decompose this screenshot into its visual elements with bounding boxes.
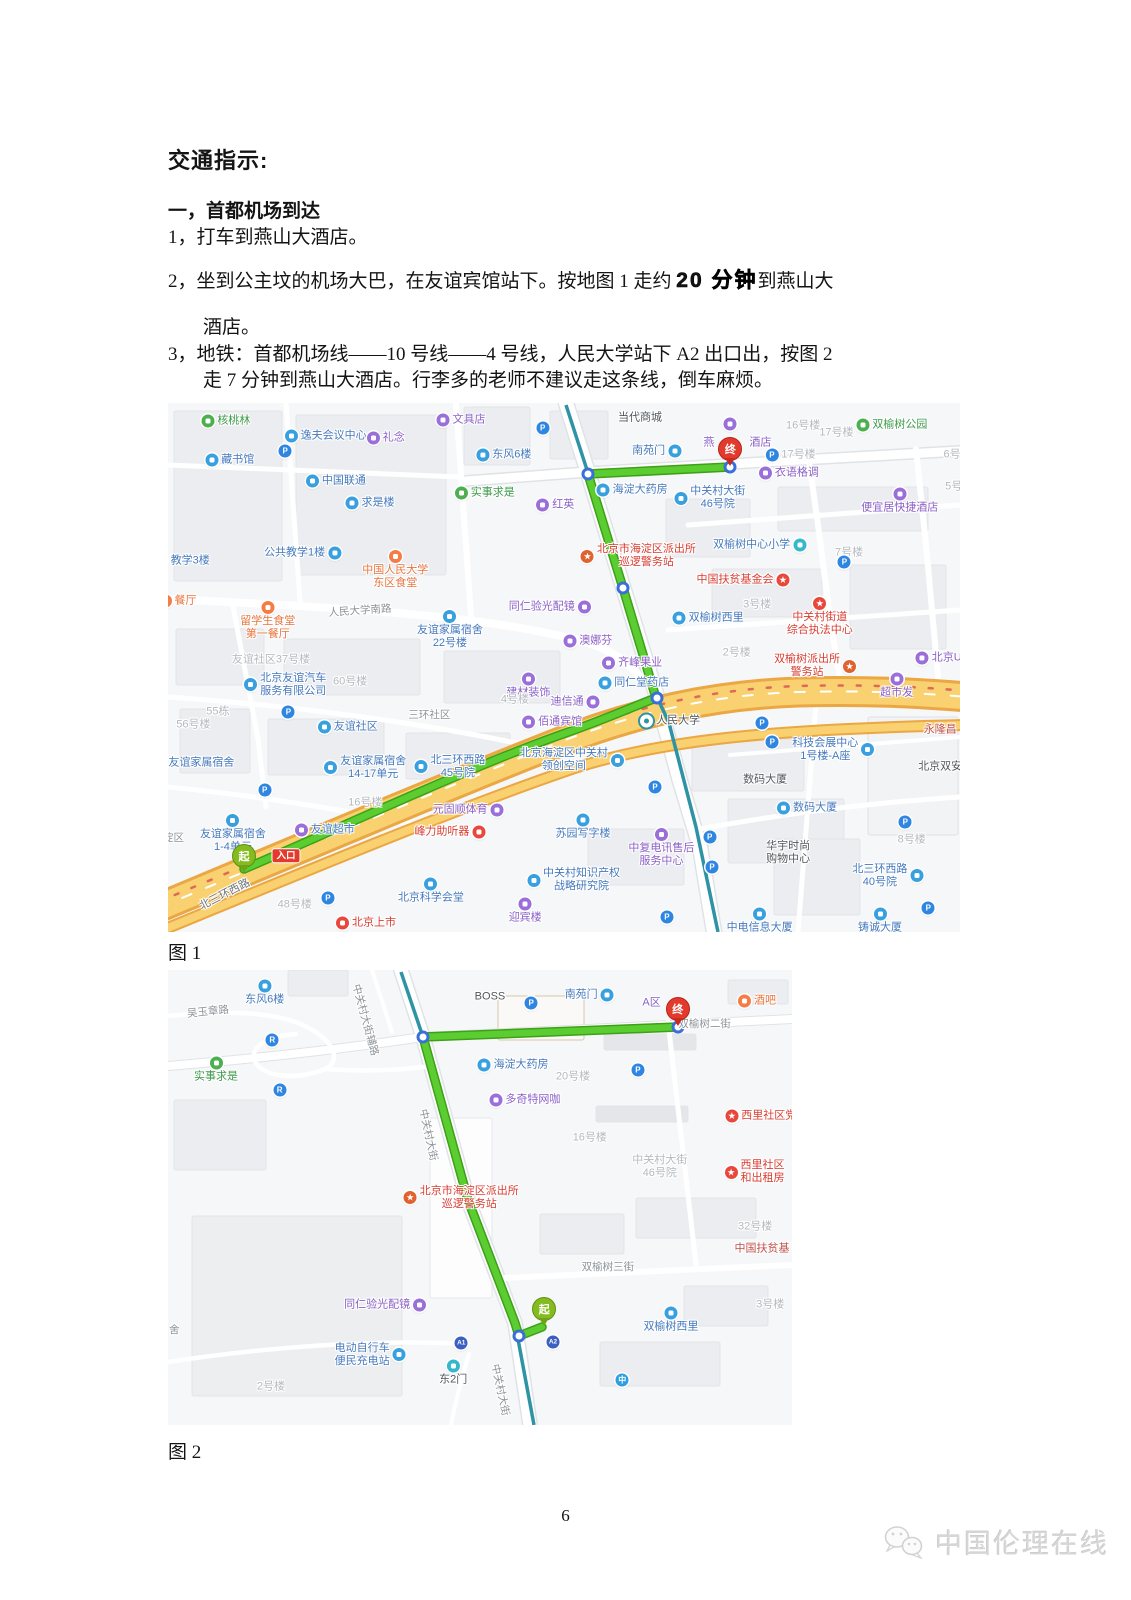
poi-label: 北京友谊汽车 服务有限公司 — [260, 672, 326, 698]
map-poi: 17号楼 — [819, 427, 853, 440]
poi-icon — [522, 715, 535, 728]
map-poi: P — [321, 892, 334, 905]
poi-icon — [673, 611, 686, 624]
map-poi: P — [536, 421, 549, 434]
poi-icon — [522, 673, 535, 686]
poi-label: 东风6楼 — [245, 993, 284, 1006]
poi-label: 双榆树公园 — [872, 419, 927, 432]
map-poi: 3号楼 — [743, 599, 771, 612]
poi-label: 永隆昌 — [924, 723, 957, 736]
poi-icon — [674, 492, 687, 505]
poi-label: 16号楼 — [786, 419, 820, 432]
poi-icon: R — [266, 1034, 279, 1047]
item2-number: 2， — [168, 271, 197, 292]
map-poi: 实事求是 — [194, 1057, 238, 1084]
map-poi: P — [766, 736, 779, 749]
map-poi: 北京上市 — [336, 917, 396, 930]
map-poi: 3号楼 — [756, 1298, 784, 1311]
poi-label: 中关村大街 46号院 — [690, 485, 745, 511]
map-poi: 北京科学会堂 — [398, 877, 464, 904]
map-poi: 20号楼 — [556, 1070, 590, 1083]
poi-icon — [336, 917, 349, 930]
map-poi: 5号 — [945, 480, 960, 493]
poi-label: 齐峰果业 — [618, 656, 662, 669]
map-poi: 中国扶贫基金会★ — [696, 574, 789, 587]
poi-label: 逸夫会议中心 — [301, 429, 367, 442]
map-poi: ★北京市海淀区派出所 巡逻警务站 — [404, 1185, 519, 1211]
poi-icon — [724, 417, 737, 430]
map-poi: A1 — [455, 1337, 468, 1350]
poi-label: 中国扶贫基 — [735, 1242, 790, 1255]
poi-icon: ★ — [725, 1166, 738, 1179]
map-poi: A2 — [547, 1336, 560, 1349]
map-poi: 中关村知识产权 战略研究院 — [527, 867, 620, 893]
poi-icon — [258, 979, 271, 992]
poi-label: 实事求是 — [194, 1071, 238, 1084]
poi-icon — [285, 429, 298, 442]
poi-label: 北京科学会堂 — [398, 891, 464, 904]
map-poi: 4号楼 — [501, 693, 529, 706]
poi-icon: P — [765, 448, 778, 461]
map-poi: P — [899, 815, 912, 828]
poi-label: 澳娜芬 — [579, 635, 612, 648]
map-poi: 永隆昌 — [924, 723, 957, 736]
map-poi: 礼念 — [367, 431, 405, 444]
poi-icon — [577, 814, 590, 827]
poi-label: 48号楼 — [278, 899, 312, 912]
poi-icon — [447, 1360, 460, 1373]
poi-icon — [414, 760, 427, 773]
map-poi: ★西里社区党 — [725, 1109, 792, 1122]
poi-label: 16号楼 — [573, 1131, 607, 1144]
poi-icon — [738, 994, 751, 1007]
poi-label: 衣语格调 — [775, 466, 819, 479]
map-poi: 中国联通 — [306, 474, 366, 487]
poi-label: 中关村大街 46号院 — [632, 1154, 687, 1180]
poi-icon — [476, 448, 489, 461]
poi-label: 双榆树中心小学 — [713, 538, 790, 551]
poi-label: 舍 — [169, 1324, 180, 1336]
poi-label: 文具店 — [453, 413, 486, 426]
map-poi: 同仁验光配镜 — [509, 601, 591, 614]
figure-2-caption: 图 2 — [168, 1437, 201, 1464]
poi-icon — [587, 695, 600, 708]
item2-text-1: 坐到公主坟的机场大巴，在友谊宾馆站下。按地图 1 走约 — [197, 271, 677, 292]
map-poi: 三环社区 — [408, 709, 450, 721]
poi-icon: ★ — [813, 597, 826, 610]
poi-icon — [226, 814, 239, 827]
map-poi: P — [631, 1064, 644, 1077]
poi-label: 中复电讯售后 服务中心 — [628, 842, 694, 868]
poi-icon: R — [273, 1084, 286, 1097]
poi-label: 当代商城 — [618, 411, 662, 424]
poi-label: 北京双安 — [918, 760, 960, 773]
poi-label: 友谊家属宿舍 1-4单元 — [200, 828, 266, 854]
list-item-1: 1，打车到燕山大酒店。 — [168, 226, 368, 251]
poi-label: 华宇时尚 购物中心 — [766, 840, 810, 866]
map-poi: 60号楼 — [333, 675, 367, 688]
poi-label: 17号楼 — [819, 427, 853, 440]
poi-icon — [655, 828, 668, 841]
poi-label: 铸诚大厦 — [858, 921, 902, 932]
map-poi: 中国扶贫基 — [735, 1242, 790, 1255]
map-poi: P — [660, 911, 673, 924]
map-poi: 双榆树中心小学 — [713, 538, 806, 551]
poi-icon — [393, 1348, 406, 1361]
poi-icon: ★ — [776, 574, 789, 587]
poi-icon — [668, 445, 681, 458]
poi-icon — [861, 744, 874, 757]
poi-label: 中国联通 — [322, 474, 366, 487]
map-poi: 8号楼 — [898, 833, 926, 846]
map-poi: 淀区 — [168, 832, 184, 844]
poi-icon — [295, 823, 308, 836]
poi-icon — [455, 486, 468, 499]
item3-number: 3， — [168, 344, 197, 365]
map-poi: 同仁堂药店 — [598, 676, 669, 689]
poi-label: 双榆树西里 — [643, 1321, 698, 1334]
poi-label: 东2门 — [439, 1374, 467, 1387]
map-poi: ★中关村街道 综合执法中心 — [787, 597, 853, 637]
map-poi: 迎宾楼 — [509, 897, 542, 924]
map-poi: P — [922, 902, 935, 915]
map-poi: 北京海淀区中关村 领创空间 — [520, 747, 624, 773]
list-item-3-line-1: 3，地铁：首都机场线——10 号线——4 号线，人民大学站下 A2 出口出，按图… — [168, 343, 833, 368]
poi-label: 北京市海淀区派出所 巡逻警务站 — [420, 1185, 519, 1211]
poi-label: BOSS — [475, 990, 506, 1003]
map-poi: 56号楼 — [176, 719, 210, 732]
poi-icon — [611, 754, 624, 767]
map-poi: P — [649, 781, 662, 794]
map-poi: ★北京市海淀区派出所 巡逻警务站 — [581, 543, 696, 569]
item1-number: 1， — [168, 227, 197, 248]
map-poi: 北京双安 — [918, 760, 960, 773]
map-poi: 32号楼 — [738, 1221, 772, 1234]
poi-icon — [777, 802, 790, 815]
poi-icon: P — [766, 736, 779, 749]
poi-icon: P — [649, 781, 662, 794]
poi-label: 求是楼 — [361, 496, 394, 509]
poi-icon: P — [706, 860, 719, 873]
poi-icon — [345, 496, 358, 509]
entrance-tag: 入口 — [271, 848, 300, 864]
poi-label: 3号楼 — [756, 1298, 784, 1311]
poi-label: 20号楼 — [556, 1070, 590, 1083]
wechat-icon — [881, 1523, 927, 1561]
map-poi: P — [282, 705, 295, 718]
poi-label: 北京上市 — [352, 917, 396, 930]
poi-label: 5号 — [945, 480, 960, 493]
poi-label: 电动自行车 便民充电站 — [335, 1342, 390, 1368]
map-poi: 双榆树西里 — [643, 1307, 698, 1334]
poi-icon: P — [756, 717, 769, 730]
map-poi: 超市发 — [880, 673, 913, 700]
map-poi: 双榆树派出所 警务站★ — [774, 653, 856, 679]
map-poi: 48号楼 — [278, 899, 312, 912]
map-poi: 多奇特网咖 — [489, 1094, 560, 1107]
poi-label: 中国扶贫基金会 — [696, 574, 773, 587]
poi-label: 北京海淀区中关村 领创空间 — [520, 747, 608, 773]
poi-icon — [910, 869, 923, 882]
poi-label: 公共教学1楼 — [264, 547, 325, 560]
poi-icon: P — [279, 445, 292, 458]
poi-label: 西里社区党 — [741, 1109, 792, 1122]
map-poi: P — [258, 784, 271, 797]
poi-label: 56号楼 — [176, 719, 210, 732]
poi-icon: A1 — [455, 1337, 468, 1350]
poi-icon — [598, 676, 611, 689]
poi-label: 人民大学 — [656, 715, 700, 728]
map-poi: 求是楼 — [345, 496, 394, 509]
poi-icon: P — [525, 997, 538, 1010]
watermark-text: 中国伦理在线 — [935, 1522, 1109, 1561]
poi-icon — [578, 601, 591, 614]
poi-icon — [168, 594, 172, 607]
map-poi: 便宜居快捷酒店 — [861, 487, 938, 514]
map-poi: 16号楼 — [786, 419, 820, 432]
poi-icon: P — [282, 705, 295, 718]
poi-label: A区 — [642, 997, 660, 1010]
map-poi: 齐峰果业 — [602, 656, 662, 669]
poi-label: 海淀大药房 — [494, 1059, 549, 1072]
poi-icon: P — [899, 815, 912, 828]
poi-icon: ★ — [725, 1109, 738, 1122]
section-heading: 一，首都机场到达 — [168, 196, 320, 223]
poi-icon: P — [660, 911, 673, 924]
poi-label: 红英 — [552, 499, 574, 512]
poi-label: 6号 — [944, 448, 960, 461]
map-poi: 数码大厦 — [777, 802, 837, 815]
poi-label: 8号楼 — [898, 833, 926, 846]
poi-label: 友谊家属宿舍 — [168, 757, 234, 770]
poi-icon — [519, 897, 532, 910]
map-poi: 2号楼 — [723, 647, 751, 660]
poi-label: 峰力助听器 — [414, 826, 469, 839]
map-poi: 佰通宾馆 — [522, 715, 582, 728]
item3-text-1: 地铁：首都机场线——10 号线——4 号线，人民大学站下 A2 出口出，按图 2 — [197, 344, 833, 365]
poi-label: 双榆树三街 — [582, 1261, 635, 1273]
poi-icon — [367, 431, 380, 444]
map-poi: 海淀大药房 — [597, 483, 668, 496]
poi-icon: P — [703, 830, 716, 843]
poi-label: 同仁验光配镜 — [509, 601, 575, 614]
poi-icon — [318, 720, 331, 733]
poi-label: 佰通宾馆 — [538, 716, 582, 729]
poi-label: 酒吧 — [754, 994, 776, 1007]
map-poi: R — [273, 1084, 286, 1097]
map-poi: 东2门 — [439, 1360, 467, 1387]
poi-label: 中关村知识产权 战略研究院 — [543, 867, 620, 893]
poi-label: 双榆树西里 — [689, 611, 744, 624]
poi-label: 海淀大药房 — [613, 483, 668, 496]
map-poi: 6号 — [944, 448, 960, 461]
poi-label: 友谊社区37号楼 — [232, 654, 310, 667]
poi-icon — [893, 487, 906, 500]
poi-icon — [759, 466, 772, 479]
poi-icon — [478, 1059, 491, 1072]
map-poi: 教学3楼 — [168, 555, 210, 568]
poi-icon — [916, 651, 929, 664]
poi-icon — [640, 715, 653, 728]
map-poi: 北京UM — [916, 651, 960, 664]
map-poi: 衣语格调 — [759, 466, 819, 479]
map-poi: BOSS — [475, 990, 506, 1003]
map-poi: 友谊家属宿舍 14-17单元 — [324, 755, 406, 781]
map-poi: 逸夫会议中心 — [285, 429, 367, 442]
map-poi: 舍 — [169, 1324, 180, 1336]
map-poi: 16号楼 — [573, 1131, 607, 1144]
map-poi: 苏园写字楼 — [556, 814, 611, 841]
poi-icon — [261, 602, 274, 615]
figure-1-route-map: 核桃林逸夫会议中心礼念文具店东风6楼藏书馆PP中国联通求是楼实事求是红英公共教学… — [168, 403, 960, 932]
map-poi: 双榆树二街 — [678, 1018, 731, 1030]
poi-label: 友谊家属宿舍 14-17单元 — [340, 755, 406, 781]
map-poi: P — [706, 860, 719, 873]
map-poi: 海淀大药房 — [478, 1059, 549, 1072]
map-poi: 迪信通 — [551, 695, 600, 708]
poi-icon — [437, 413, 450, 426]
poi-label: 数码大厦 — [793, 802, 837, 815]
figure-2-route-map: 东风6楼吴玉章路BOSS南苑门P实事求是RR中关村大街辅路海淀大药房20号楼多奇… — [168, 970, 792, 1425]
poi-label: 礼念 — [383, 431, 405, 444]
poi-icon — [489, 1094, 502, 1107]
map-poi: 中 — [616, 1373, 629, 1386]
poi-icon: P — [321, 892, 334, 905]
map-poi: 友谊社区37号楼 — [232, 654, 310, 667]
map-poi: 红英 — [536, 499, 574, 512]
poi-icon — [413, 1298, 426, 1311]
poi-icon — [602, 656, 615, 669]
poi-icon — [793, 538, 806, 551]
poi-label: 南苑门 — [632, 445, 665, 458]
map-poi: 电动自行车 便民充电站 — [335, 1342, 406, 1368]
map-poi: ★西里社区 和出租房 — [725, 1160, 785, 1186]
poi-label: 东风6楼 — [492, 448, 531, 461]
page-title: 交通指示: — [168, 143, 268, 175]
poi-icon — [527, 874, 540, 887]
map-poi: 人民大学 — [640, 715, 700, 728]
map-poi: 核桃林 — [201, 414, 250, 427]
poi-icon — [205, 454, 218, 467]
map-poi: P — [756, 717, 769, 730]
map-poi: 北三环西路 40号院 — [852, 863, 923, 889]
map-poi: 中国人民大学 东区食堂 — [362, 550, 428, 590]
map-poi: 峰力助听器 — [414, 826, 485, 839]
poi-label: 核桃林 — [217, 415, 250, 428]
map-poi: 中关村大街 46号院 — [674, 485, 745, 511]
map-poi: 文具店 — [437, 413, 486, 426]
map-poi: 双榆树公园 — [856, 419, 927, 432]
poi-label: 北京UM — [932, 651, 960, 664]
poi-label: 双榆树二街 — [678, 1018, 731, 1030]
figure-1-caption: 图 1 — [168, 938, 201, 965]
map-poi: 友谊家属宿舍 1-4单元 — [200, 814, 266, 854]
poi-label: 2号楼 — [257, 1380, 285, 1393]
map-poi: 实事求是 — [455, 486, 515, 499]
list-item-2-line-2: 酒店。 — [203, 316, 260, 341]
poi-icon — [324, 762, 337, 775]
poi-label: 北三环西路 45号院 — [430, 754, 485, 780]
item1-text: 打车到燕山大酒店。 — [197, 227, 368, 248]
poi-icon — [389, 550, 402, 563]
map-poi: 数码大厦 — [743, 774, 787, 787]
poi-label: 双榆树派出所 警务站 — [774, 653, 840, 679]
map-poi: 友谊家属宿舍 — [168, 757, 234, 770]
map-poi: P17号楼 — [765, 448, 815, 461]
poi-icon: A2 — [547, 1336, 560, 1349]
poi-icon — [201, 414, 214, 427]
poi-label: 实事求是 — [471, 486, 515, 499]
poi-label: 西里社区 和出租房 — [741, 1160, 785, 1186]
poi-icon: P — [922, 902, 935, 915]
poi-label: 南苑门 — [565, 989, 598, 1002]
poi-icon — [306, 474, 319, 487]
map-poi: 友谊超市 — [295, 823, 355, 836]
poi-icon — [563, 635, 576, 648]
map-poi: 澳娜芬 — [563, 635, 612, 648]
list-item-3-line-2: 走 7 分钟到燕山大酒店。行李多的老师不建议走这条线，倒车麻烦。 — [203, 369, 773, 394]
duration-bold-text: 20 分钟 — [676, 269, 757, 292]
map-poi: 东风6楼 — [245, 979, 284, 1006]
map-poi: 16号楼 — [348, 796, 382, 809]
poi-label: 元固顺体育 — [433, 803, 488, 816]
map-poi: 双榆树三街 — [582, 1261, 635, 1273]
poi-icon — [890, 673, 903, 686]
poi-label: 三环社区 — [408, 709, 450, 721]
poi-label: 迎宾楼 — [509, 911, 542, 924]
map-poi: R — [266, 1034, 279, 1047]
poi-label: 便宜居快捷酒店 — [861, 501, 938, 514]
poi-label: 留学生食堂 第一餐厅 — [240, 616, 295, 642]
poi-label: 3号楼 — [743, 599, 771, 612]
map-poi: P — [525, 997, 538, 1010]
poi-icon — [597, 483, 610, 496]
map-poi: 中关村大街 46号院 — [632, 1154, 687, 1180]
poi-icon: ★ — [843, 660, 856, 673]
map-poi: 餐厅 — [168, 594, 197, 607]
poi-label: 北京市海淀区派出所 巡逻警务站 — [597, 543, 696, 569]
poi-label: 迪信通 — [551, 695, 584, 708]
poi-icon — [424, 877, 437, 890]
map-poi: 元固顺体育 — [433, 803, 504, 816]
map-poi: P — [279, 445, 292, 458]
poi-icon — [536, 499, 549, 512]
map-poi: 南苑门 — [565, 989, 614, 1002]
poi-label: 4号楼 — [501, 693, 529, 706]
poi-label: 中关村街道 综合执法中心 — [787, 611, 853, 637]
poi-label: 淀区 — [168, 832, 184, 844]
poi-icon — [874, 907, 887, 920]
poi-label: 同仁堂药店 — [614, 676, 669, 689]
watermark: 中国伦理在线 — [881, 1522, 1109, 1561]
poi-label: 2号楼 — [723, 647, 751, 660]
poi-label: 17号楼 — [781, 448, 815, 461]
poi-icon — [472, 826, 485, 839]
poi-label: 32号楼 — [738, 1221, 772, 1234]
poi-label: 中电信息大厦 — [727, 921, 793, 932]
poi-label: 教学3楼 — [171, 555, 210, 568]
poi-icon: ★ — [404, 1191, 417, 1204]
map-poi: 铸诚大厦 — [858, 907, 902, 932]
map-poi: A区 — [642, 997, 660, 1010]
poi-icon — [328, 547, 341, 560]
map-poi: 科技会展中心 1号楼-A座 — [792, 737, 874, 763]
poi-icon: P — [258, 784, 271, 797]
map-poi: 东风6楼 — [476, 448, 531, 461]
item2-text-2: 到燕山大 — [757, 271, 833, 292]
map-poi — [724, 417, 737, 430]
poi-label: 16号楼 — [348, 796, 382, 809]
